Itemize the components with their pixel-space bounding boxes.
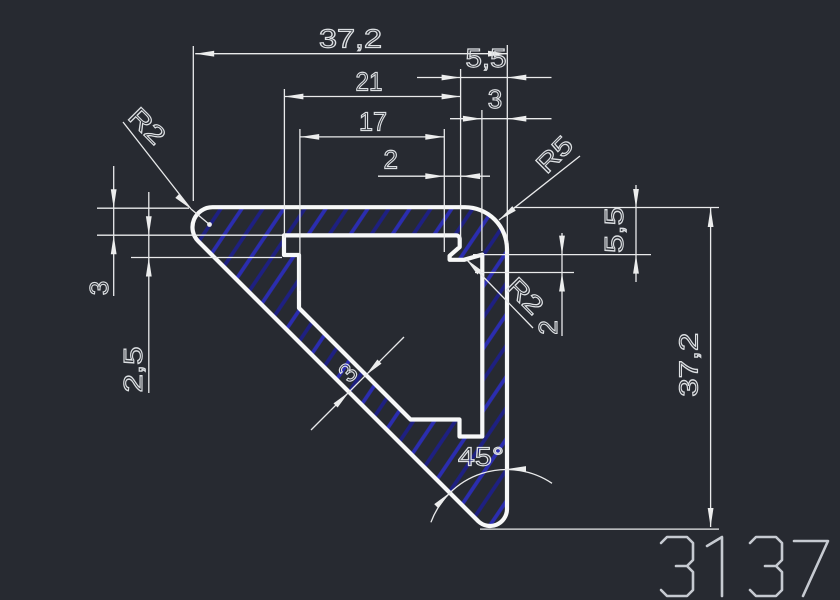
svg-text:2: 2: [533, 320, 563, 334]
svg-text:2: 2: [383, 145, 397, 175]
svg-text:21: 21: [356, 67, 383, 97]
svg-text:5,5: 5,5: [599, 207, 629, 253]
svg-text:3: 3: [84, 281, 114, 295]
svg-text:37,2: 37,2: [674, 333, 704, 397]
svg-text:45°: 45°: [458, 442, 504, 472]
svg-text:37,2: 37,2: [319, 24, 382, 54]
svg-text:17: 17: [359, 107, 387, 137]
svg-text:2,5: 2,5: [118, 347, 148, 393]
svg-text:5,5: 5,5: [466, 43, 507, 73]
svg-text:3: 3: [488, 84, 502, 114]
